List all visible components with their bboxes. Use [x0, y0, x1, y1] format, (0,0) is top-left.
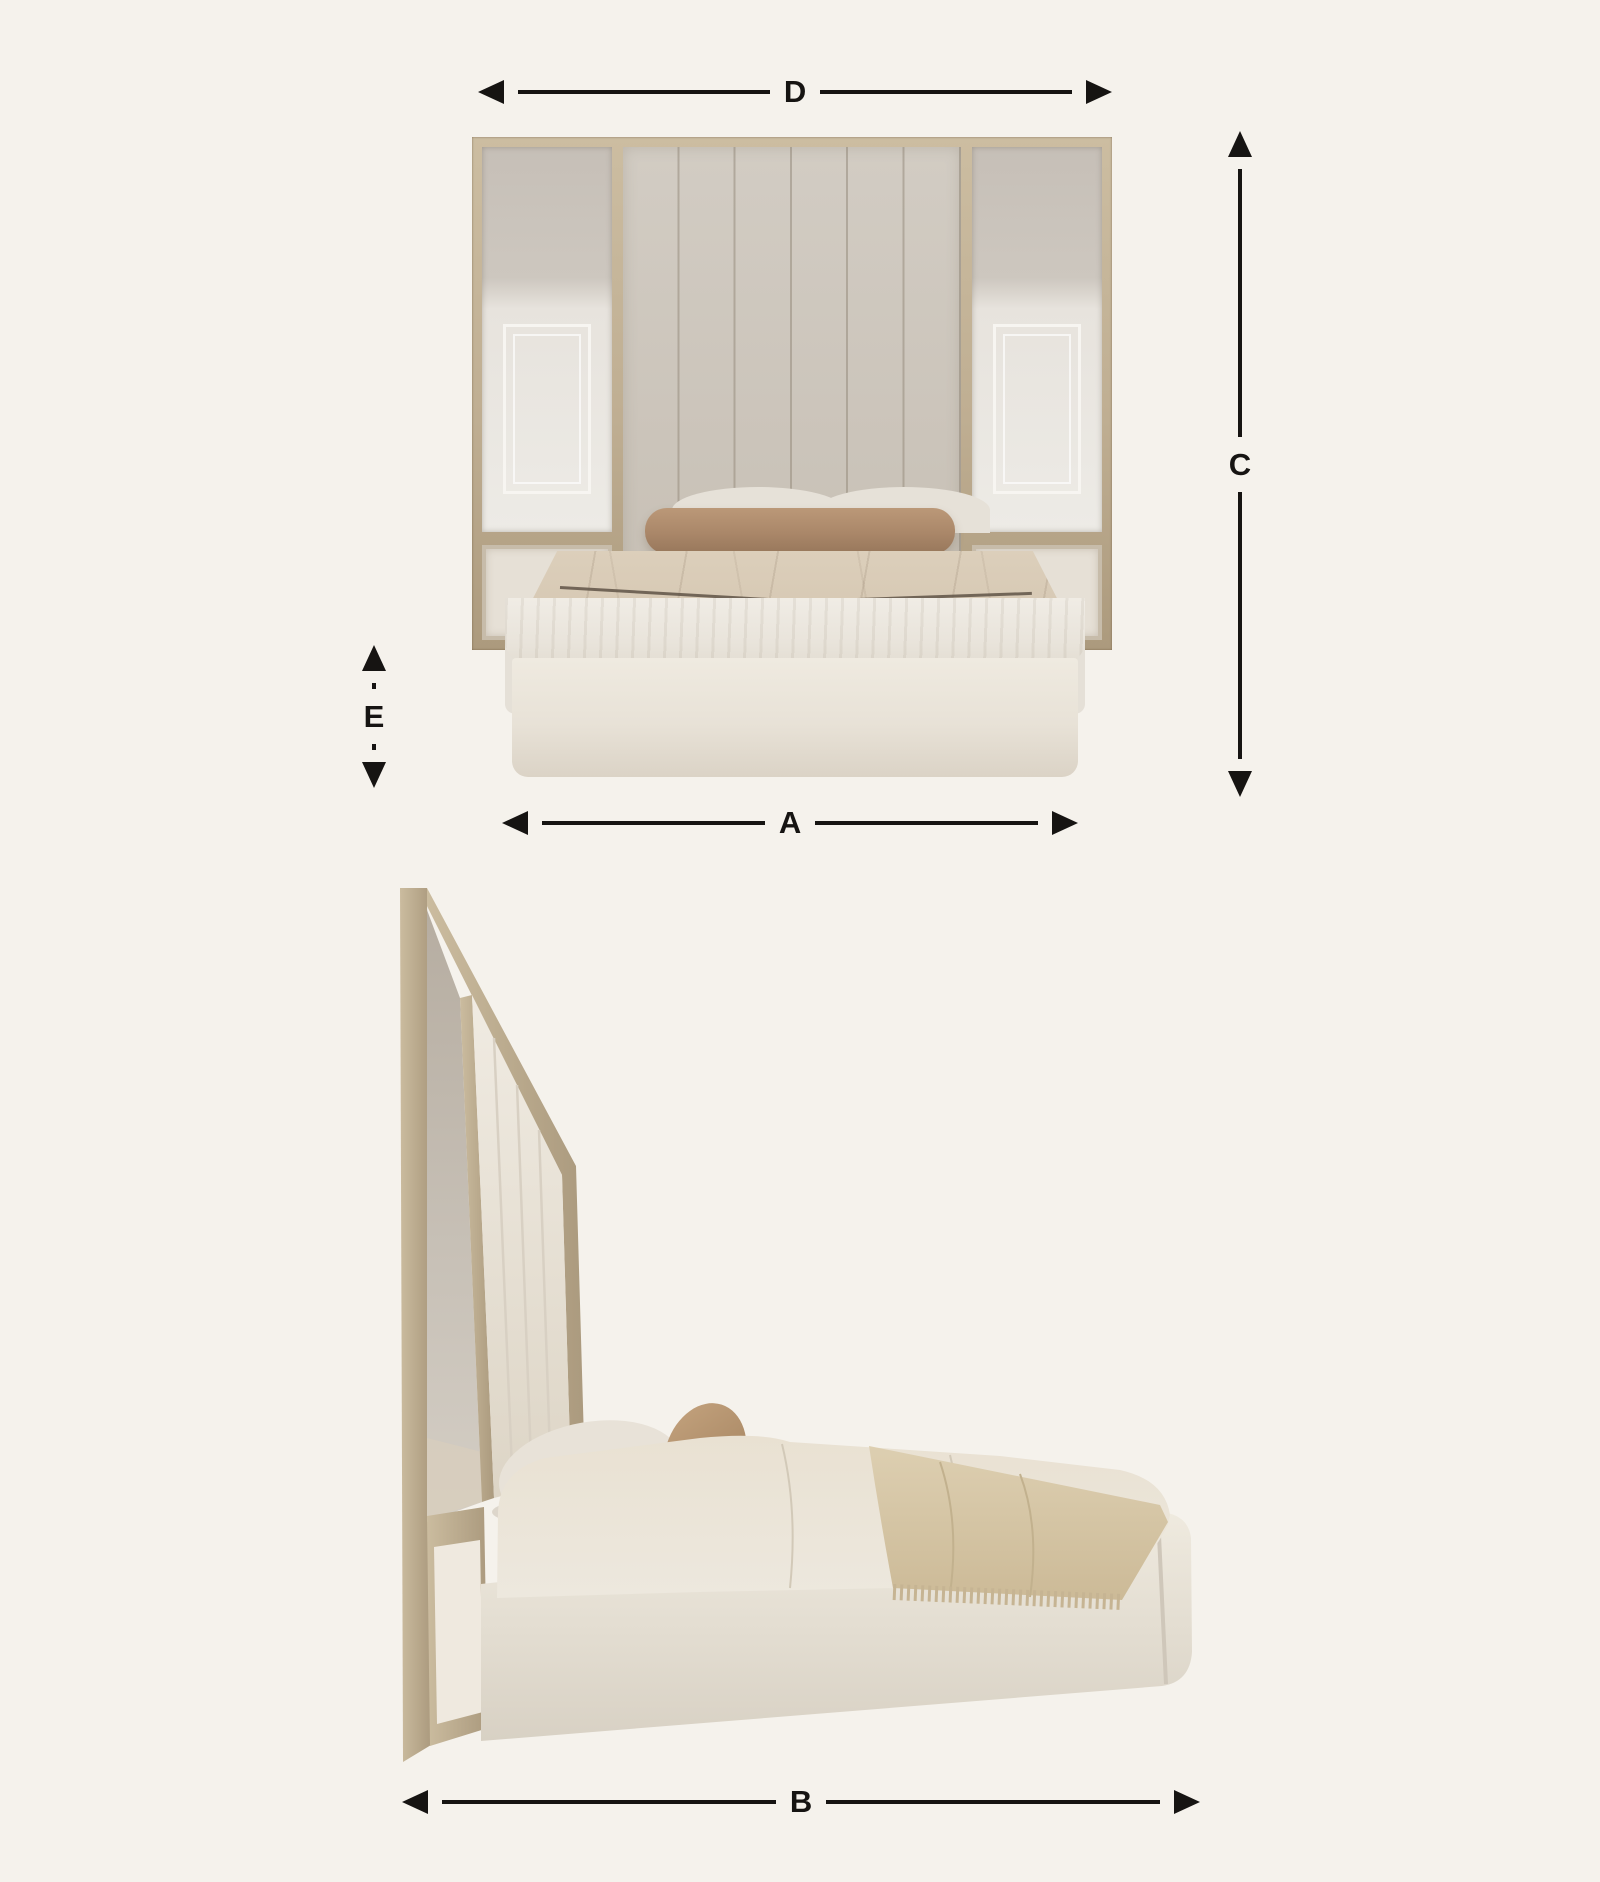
dim-E: E — [358, 645, 390, 788]
dim-label-C: C — [1229, 449, 1251, 480]
mirror-panel-right — [972, 147, 1102, 532]
arrowhead-down-icon — [1228, 771, 1252, 797]
dim-label-D: D — [784, 76, 806, 107]
product-dimensions-diagram: D C E A B — [0, 0, 1600, 1882]
dim-line — [542, 821, 765, 825]
dim-line — [1238, 169, 1242, 437]
mirror-bed-reflection — [427, 1438, 482, 1519]
arrowhead-down-icon — [362, 762, 386, 788]
headboard-side-stile — [400, 888, 431, 1762]
arrowhead-left-icon — [502, 811, 528, 835]
mirror-panel-left — [482, 147, 612, 532]
dim-B: B — [402, 1786, 1200, 1817]
mirror-reflection-moulding — [503, 324, 591, 493]
dim-A: A — [502, 807, 1078, 838]
dim-label-A: A — [779, 807, 801, 838]
dim-line — [815, 821, 1038, 825]
bolster-pillow — [645, 508, 955, 554]
arrowhead-right-icon — [1052, 811, 1078, 835]
arrowhead-left-icon — [402, 1790, 428, 1814]
dim-C: C — [1224, 131, 1256, 797]
dim-line — [372, 744, 376, 750]
arrowhead-up-icon — [1228, 131, 1252, 157]
dim-line — [372, 683, 376, 689]
mirror-reflection-moulding — [993, 324, 1081, 493]
dim-line — [1238, 492, 1242, 760]
arrowhead-up-icon — [362, 645, 386, 671]
dim-line — [826, 1800, 1160, 1804]
dim-line — [820, 90, 1072, 94]
lower-panel-side — [434, 1540, 483, 1724]
dim-label-B: B — [790, 1786, 812, 1817]
dim-label-E: E — [364, 701, 385, 732]
arrowhead-right-icon — [1174, 1790, 1200, 1814]
arrowhead-right-icon — [1086, 80, 1112, 104]
side-view — [300, 860, 1250, 1820]
bed-base-front — [512, 658, 1078, 777]
arrowhead-left-icon — [478, 80, 504, 104]
dim-line — [442, 1800, 776, 1804]
dim-D: D — [478, 76, 1112, 107]
dim-line — [518, 90, 770, 94]
